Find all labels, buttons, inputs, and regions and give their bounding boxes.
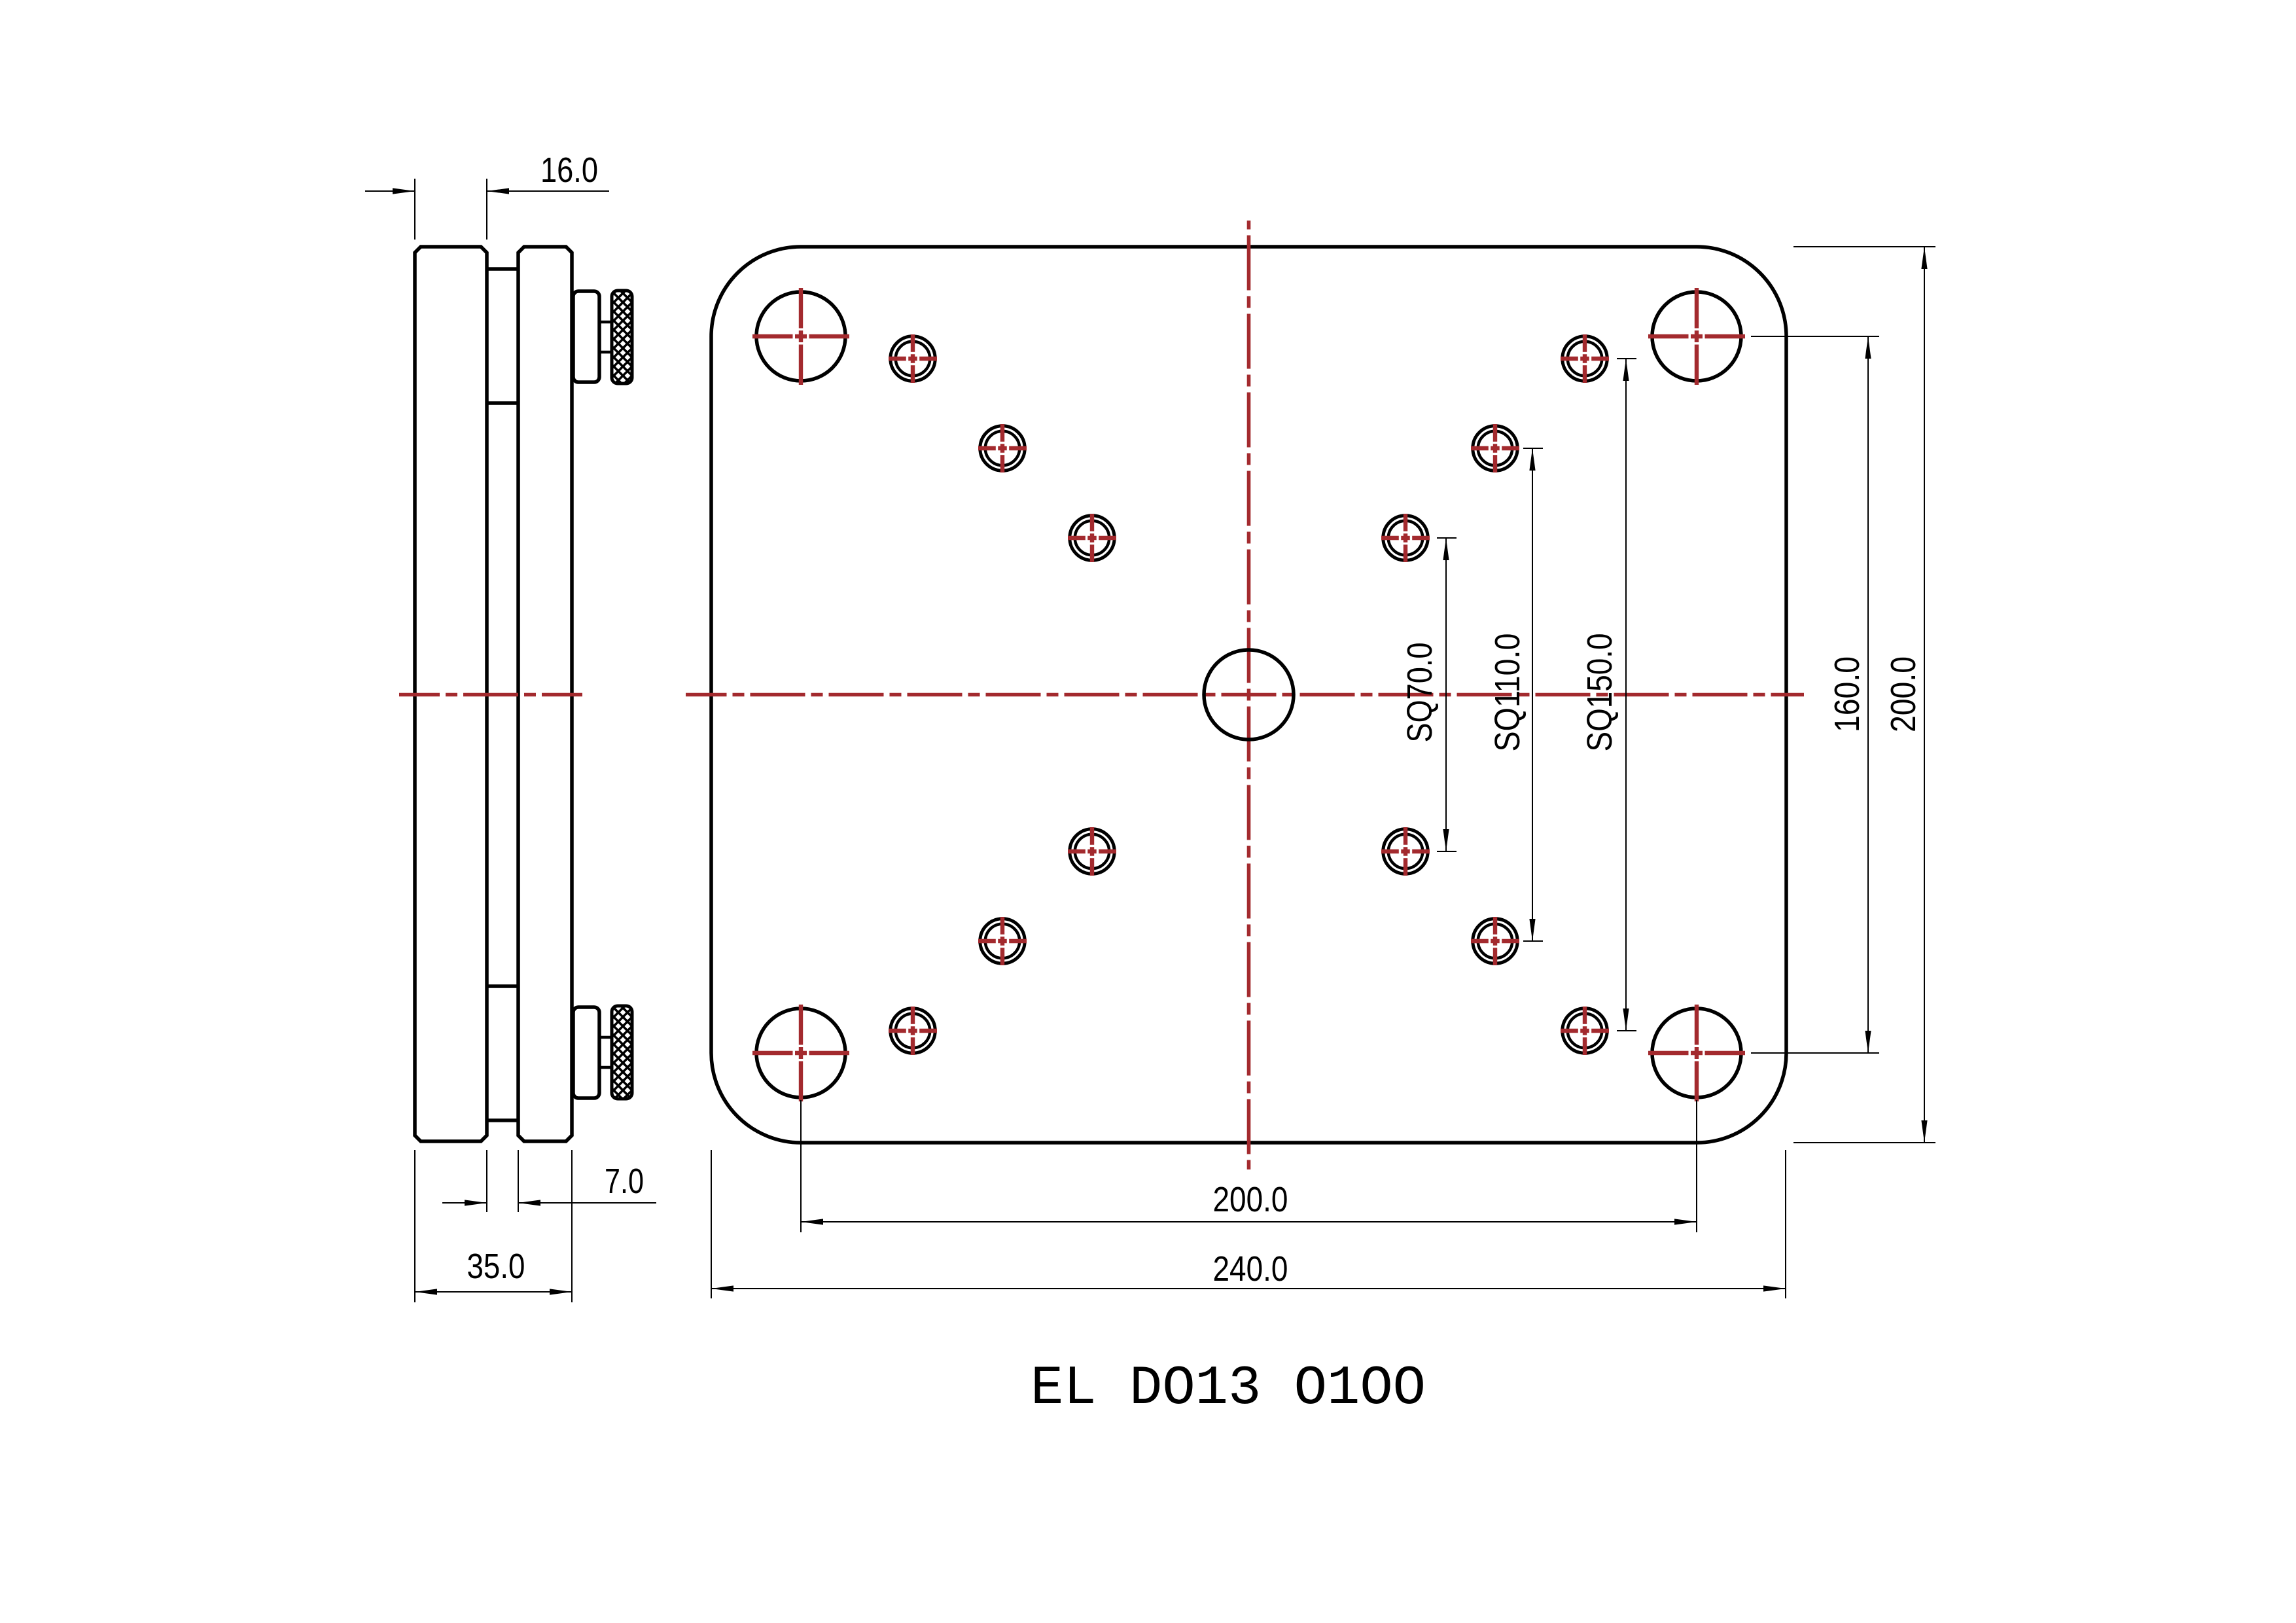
svg-text:160.0: 160.0 xyxy=(1828,656,1867,732)
svg-text:35.0: 35.0 xyxy=(467,1247,525,1286)
svg-text:SQ150.0: SQ150.0 xyxy=(1580,633,1619,752)
svg-text:200.0: 200.0 xyxy=(1884,656,1923,732)
svg-text:16.0: 16.0 xyxy=(540,151,598,190)
svg-text:200.0: 200.0 xyxy=(1213,1180,1288,1219)
svg-text:SQ70.0: SQ70.0 xyxy=(1400,643,1439,743)
svg-text:7.0: 7.0 xyxy=(605,1162,644,1201)
svg-text:EL DO13 O1OO: EL DO13 O1OO xyxy=(1031,1358,1426,1420)
svg-text:240.0: 240.0 xyxy=(1213,1249,1288,1289)
svg-text:SQ110.0: SQ110.0 xyxy=(1488,633,1527,752)
